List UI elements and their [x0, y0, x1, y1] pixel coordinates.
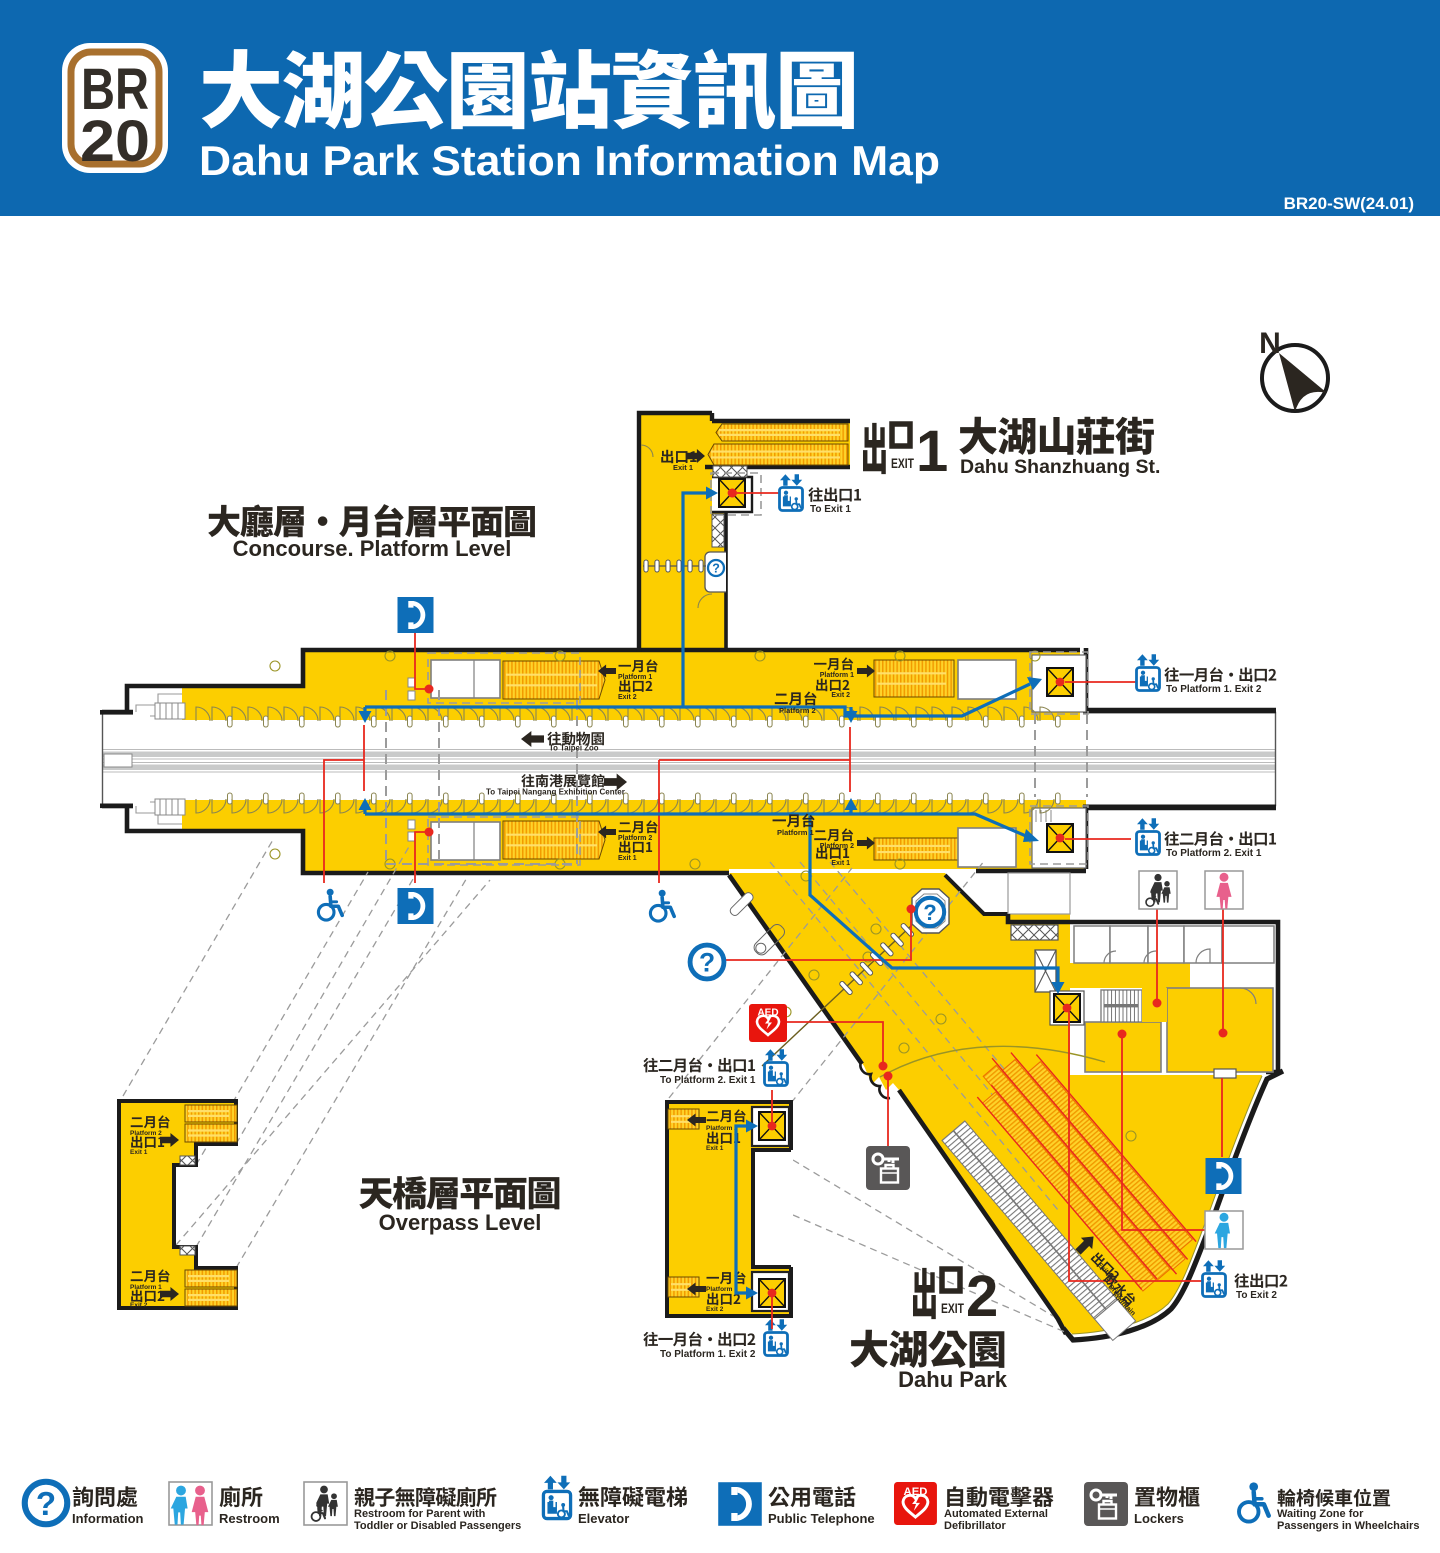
svg-text:置物櫃: 置物櫃 — [1134, 1480, 1200, 1512]
svg-text:一月台: 一月台 — [618, 655, 659, 675]
svg-text:To Taipei Nangang Exhibition C: To Taipei Nangang Exhibition Center — [486, 788, 625, 797]
svg-text:Platform 2: Platform 2 — [779, 706, 816, 715]
svg-text:N: N — [1259, 327, 1281, 360]
svg-text:Dahu Park Station Information: Dahu Park Station Information Map — [199, 137, 940, 184]
svg-text:Exit 1: Exit 1 — [831, 860, 850, 867]
svg-text:Exit 1: Exit 1 — [618, 855, 637, 862]
svg-text:往二月台·出口1: 往二月台·出口1 — [1164, 828, 1277, 850]
svg-text:Toddler or Disabled Passengers: Toddler or Disabled Passengers — [354, 1520, 521, 1532]
svg-text:To Taipei Zoo: To Taipei Zoo — [549, 744, 599, 753]
svg-text:1: 1 — [916, 419, 948, 484]
svg-text:大湖山莊街: 大湖山莊街 — [958, 405, 1155, 463]
svg-text:大湖公園站資訊圖: 大湖公園站資訊圖 — [199, 25, 859, 146]
svg-text:To Platform 1. Exit 2: To Platform 1. Exit 2 — [1166, 684, 1262, 695]
svg-text:往一月台·出口2: 往一月台·出口2 — [643, 1328, 756, 1350]
svg-text:Passengers in Wheelchairs: Passengers in Wheelchairs — [1277, 1520, 1419, 1532]
svg-text:往一月台·出口2: 往一月台·出口2 — [1164, 664, 1277, 686]
svg-text:出口2: 出口2 — [815, 674, 850, 694]
svg-text:To Exit 1: To Exit 1 — [810, 504, 851, 515]
svg-text:Concourse. Platform Level: Concourse. Platform Level — [233, 536, 512, 561]
svg-text:一月台: 一月台 — [706, 1267, 747, 1287]
svg-text:往出口1: 往出口1 — [808, 484, 862, 506]
svg-text:To Exit 2: To Exit 2 — [1236, 1290, 1277, 1301]
svg-text:To Platform 2. Exit 1: To Platform 2. Exit 1 — [660, 1075, 756, 1086]
svg-text:出口1: 出口1 — [815, 842, 850, 862]
svg-text:Exit 1: Exit 1 — [673, 463, 693, 472]
svg-text:二月台: 二月台 — [618, 816, 659, 836]
svg-text:詢問處: 詢問處 — [72, 1480, 138, 1512]
svg-text:Elevator: Elevator — [578, 1511, 629, 1526]
svg-text:出口2: 出口2 — [618, 675, 653, 695]
svg-text:Exit 2: Exit 2 — [130, 1302, 148, 1309]
svg-text:出: 出 — [861, 406, 888, 485]
svg-text:二月台: 二月台 — [706, 1105, 747, 1125]
svg-text:出口1: 出口1 — [130, 1131, 165, 1151]
svg-text:往出口2: 往出口2 — [1234, 1270, 1288, 1292]
svg-text:無障礙電梯: 無障礙電梯 — [578, 1480, 688, 1512]
svg-text:二月台: 二月台 — [130, 1111, 171, 1131]
svg-text:Exit 1: Exit 1 — [706, 1145, 724, 1152]
svg-text:廁所: 廁所 — [219, 1480, 263, 1512]
svg-text:Public Telephone: Public Telephone — [768, 1511, 875, 1526]
svg-text:Lockers: Lockers — [1134, 1511, 1184, 1526]
svg-text:Exit 2: Exit 2 — [706, 1306, 724, 1313]
svg-text:二月台: 二月台 — [130, 1265, 171, 1285]
svg-text:Automated External: Automated External — [944, 1508, 1048, 1520]
svg-text:20: 20 — [80, 109, 150, 174]
svg-text:To Platform 2. Exit 1: To Platform 2. Exit 1 — [1166, 848, 1262, 859]
svg-text:Platform 1: Platform 1 — [777, 828, 814, 837]
svg-text:Dahu Park: Dahu Park — [898, 1367, 1008, 1392]
svg-text:Dahu Shanzhuang St.: Dahu Shanzhuang St. — [960, 456, 1160, 478]
svg-text:往二月台·出口1: 往二月台·出口1 — [643, 1054, 756, 1076]
svg-text:Overpass Level: Overpass Level — [379, 1210, 542, 1235]
svg-text:Exit 2: Exit 2 — [618, 694, 637, 701]
svg-text:出口1: 出口1 — [618, 836, 653, 856]
svg-text:一月台: 一月台 — [814, 653, 855, 673]
svg-text:EXIT: EXIT — [891, 456, 915, 471]
svg-text:To Platform 1. Exit 2: To Platform 1. Exit 2 — [660, 1349, 756, 1360]
svg-text:Information: Information — [72, 1511, 144, 1526]
svg-text:輪椅候車位置: 輪椅候車位置 — [1277, 1484, 1391, 1511]
svg-text:Exit 2: Exit 2 — [831, 692, 850, 699]
svg-text:Waiting Zone for: Waiting Zone for — [1277, 1508, 1364, 1520]
svg-text:Defibrillator: Defibrillator — [944, 1520, 1006, 1532]
svg-text:BR20-SW(24.01): BR20-SW(24.01) — [1284, 194, 1414, 213]
svg-text:二月台: 二月台 — [814, 824, 855, 844]
svg-text:EXIT: EXIT — [941, 1301, 965, 1316]
svg-text:公用電話: 公用電話 — [768, 1480, 856, 1512]
svg-text:Exit 1: Exit 1 — [130, 1149, 148, 1156]
svg-text:Restroom: Restroom — [219, 1511, 280, 1526]
svg-text:Restroom for Parent with: Restroom for Parent with — [354, 1508, 486, 1520]
